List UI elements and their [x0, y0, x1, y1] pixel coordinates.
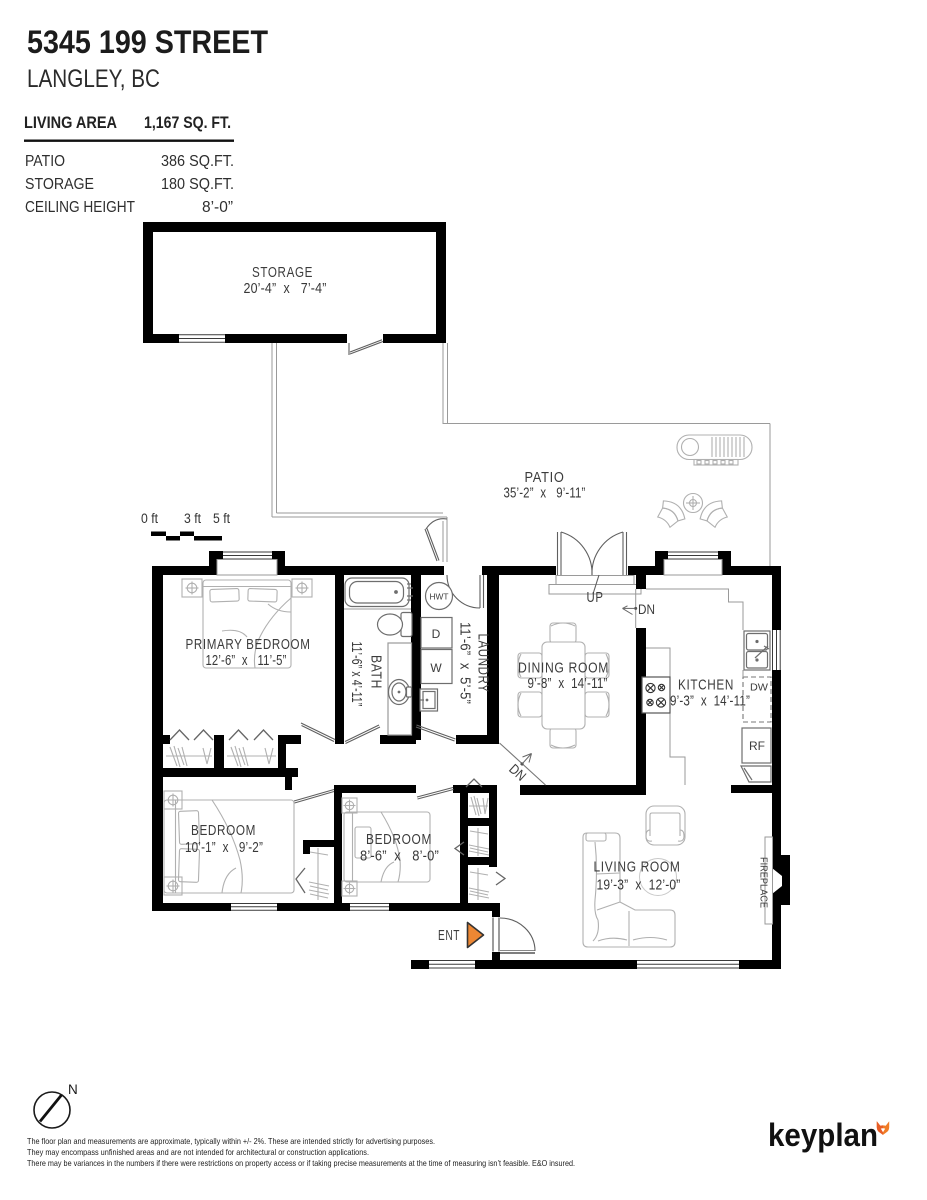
svg-text:STORAGE: STORAGE — [252, 264, 313, 281]
svg-text:CEILING HEIGHT: CEILING HEIGHT — [25, 199, 135, 216]
svg-text:8’-0”: 8’-0” — [202, 199, 233, 216]
svg-text:5345 199 STREET: 5345 199 STREET — [27, 24, 268, 60]
svg-text:20’-4” x 7’-4”: 20’-4” x 7’-4” — [244, 281, 327, 297]
svg-text:DINING ROOM: DINING ROOM — [518, 660, 609, 677]
svg-text:HWT: HWT — [430, 592, 449, 602]
svg-text:5 ft: 5 ft — [213, 511, 230, 526]
svg-text:LIVING ROOM: LIVING ROOM — [594, 859, 681, 876]
svg-text:9’-8” x 14’-11”: 9’-8” x 14’-11” — [528, 676, 608, 692]
svg-text:PRIMARY BEDROOM: PRIMARY BEDROOM — [186, 636, 311, 653]
svg-text:35’-2” x 9’-11”: 35’-2” x 9’-11” — [504, 486, 586, 502]
svg-text:8’-6” x 8’-0”: 8’-6” x 8’-0” — [360, 849, 439, 865]
svg-text:They may encompass unfinished: They may encompass unfinished areas and … — [27, 1147, 369, 1157]
svg-text:BEDROOM: BEDROOM — [191, 822, 256, 839]
svg-text:0 ft: 0 ft — [141, 511, 158, 526]
svg-text:PATIO: PATIO — [525, 469, 565, 486]
svg-text:180 SQ.FT.: 180 SQ.FT. — [161, 176, 234, 193]
svg-text:LIVING AREA: LIVING AREA — [24, 114, 117, 132]
svg-text:W: W — [430, 661, 442, 675]
svg-text:PATIO: PATIO — [25, 153, 65, 170]
svg-text:11’-6” x 4’-11”: 11’-6” x 4’-11” — [348, 642, 364, 707]
svg-text:9’-3” x 14’-11”: 9’-3” x 14’-11” — [670, 694, 750, 710]
svg-text:The floor plan and measurement: The floor plan and measurements are appr… — [27, 1136, 435, 1146]
svg-text:DN: DN — [638, 601, 655, 617]
svg-text:386 SQ.FT.: 386 SQ.FT. — [161, 153, 234, 170]
svg-text:LAUNDRY: LAUNDRY — [475, 634, 492, 693]
svg-text:ENT: ENT — [438, 927, 460, 944]
svg-text:3 ft: 3 ft — [184, 511, 201, 526]
svg-text:19’-3” x 12’-0”: 19’-3” x 12’-0” — [597, 878, 681, 894]
svg-text:BEDROOM: BEDROOM — [366, 831, 432, 848]
svg-text:There may be variances in the: There may be variances in the numbers if… — [27, 1158, 575, 1168]
svg-text:D: D — [432, 627, 441, 641]
svg-text:KITCHEN: KITCHEN — [678, 677, 734, 694]
svg-text:N: N — [68, 1082, 78, 1097]
svg-text:keyplan: keyplan — [768, 1117, 878, 1153]
svg-text:STORAGE: STORAGE — [25, 176, 94, 193]
svg-text:BATH: BATH — [368, 655, 385, 689]
svg-text:LANGLEY, BC: LANGLEY, BC — [27, 65, 160, 93]
svg-text:RF: RF — [749, 739, 765, 753]
svg-text:11’-6” x 5’-5”: 11’-6” x 5’-5” — [457, 622, 473, 704]
svg-text:12’-6” x 11’-5”: 12’-6” x 11’-5” — [206, 653, 287, 669]
svg-text:UP: UP — [587, 589, 604, 606]
svg-text:1,167 SQ. FT.: 1,167 SQ. FT. — [144, 114, 231, 132]
svg-text:FIREPLACE: FIREPLACE — [758, 857, 770, 908]
svg-text:DW: DW — [750, 683, 769, 694]
svg-text:10’-1” x 9’-2”: 10’-1” x 9’-2” — [185, 840, 263, 856]
